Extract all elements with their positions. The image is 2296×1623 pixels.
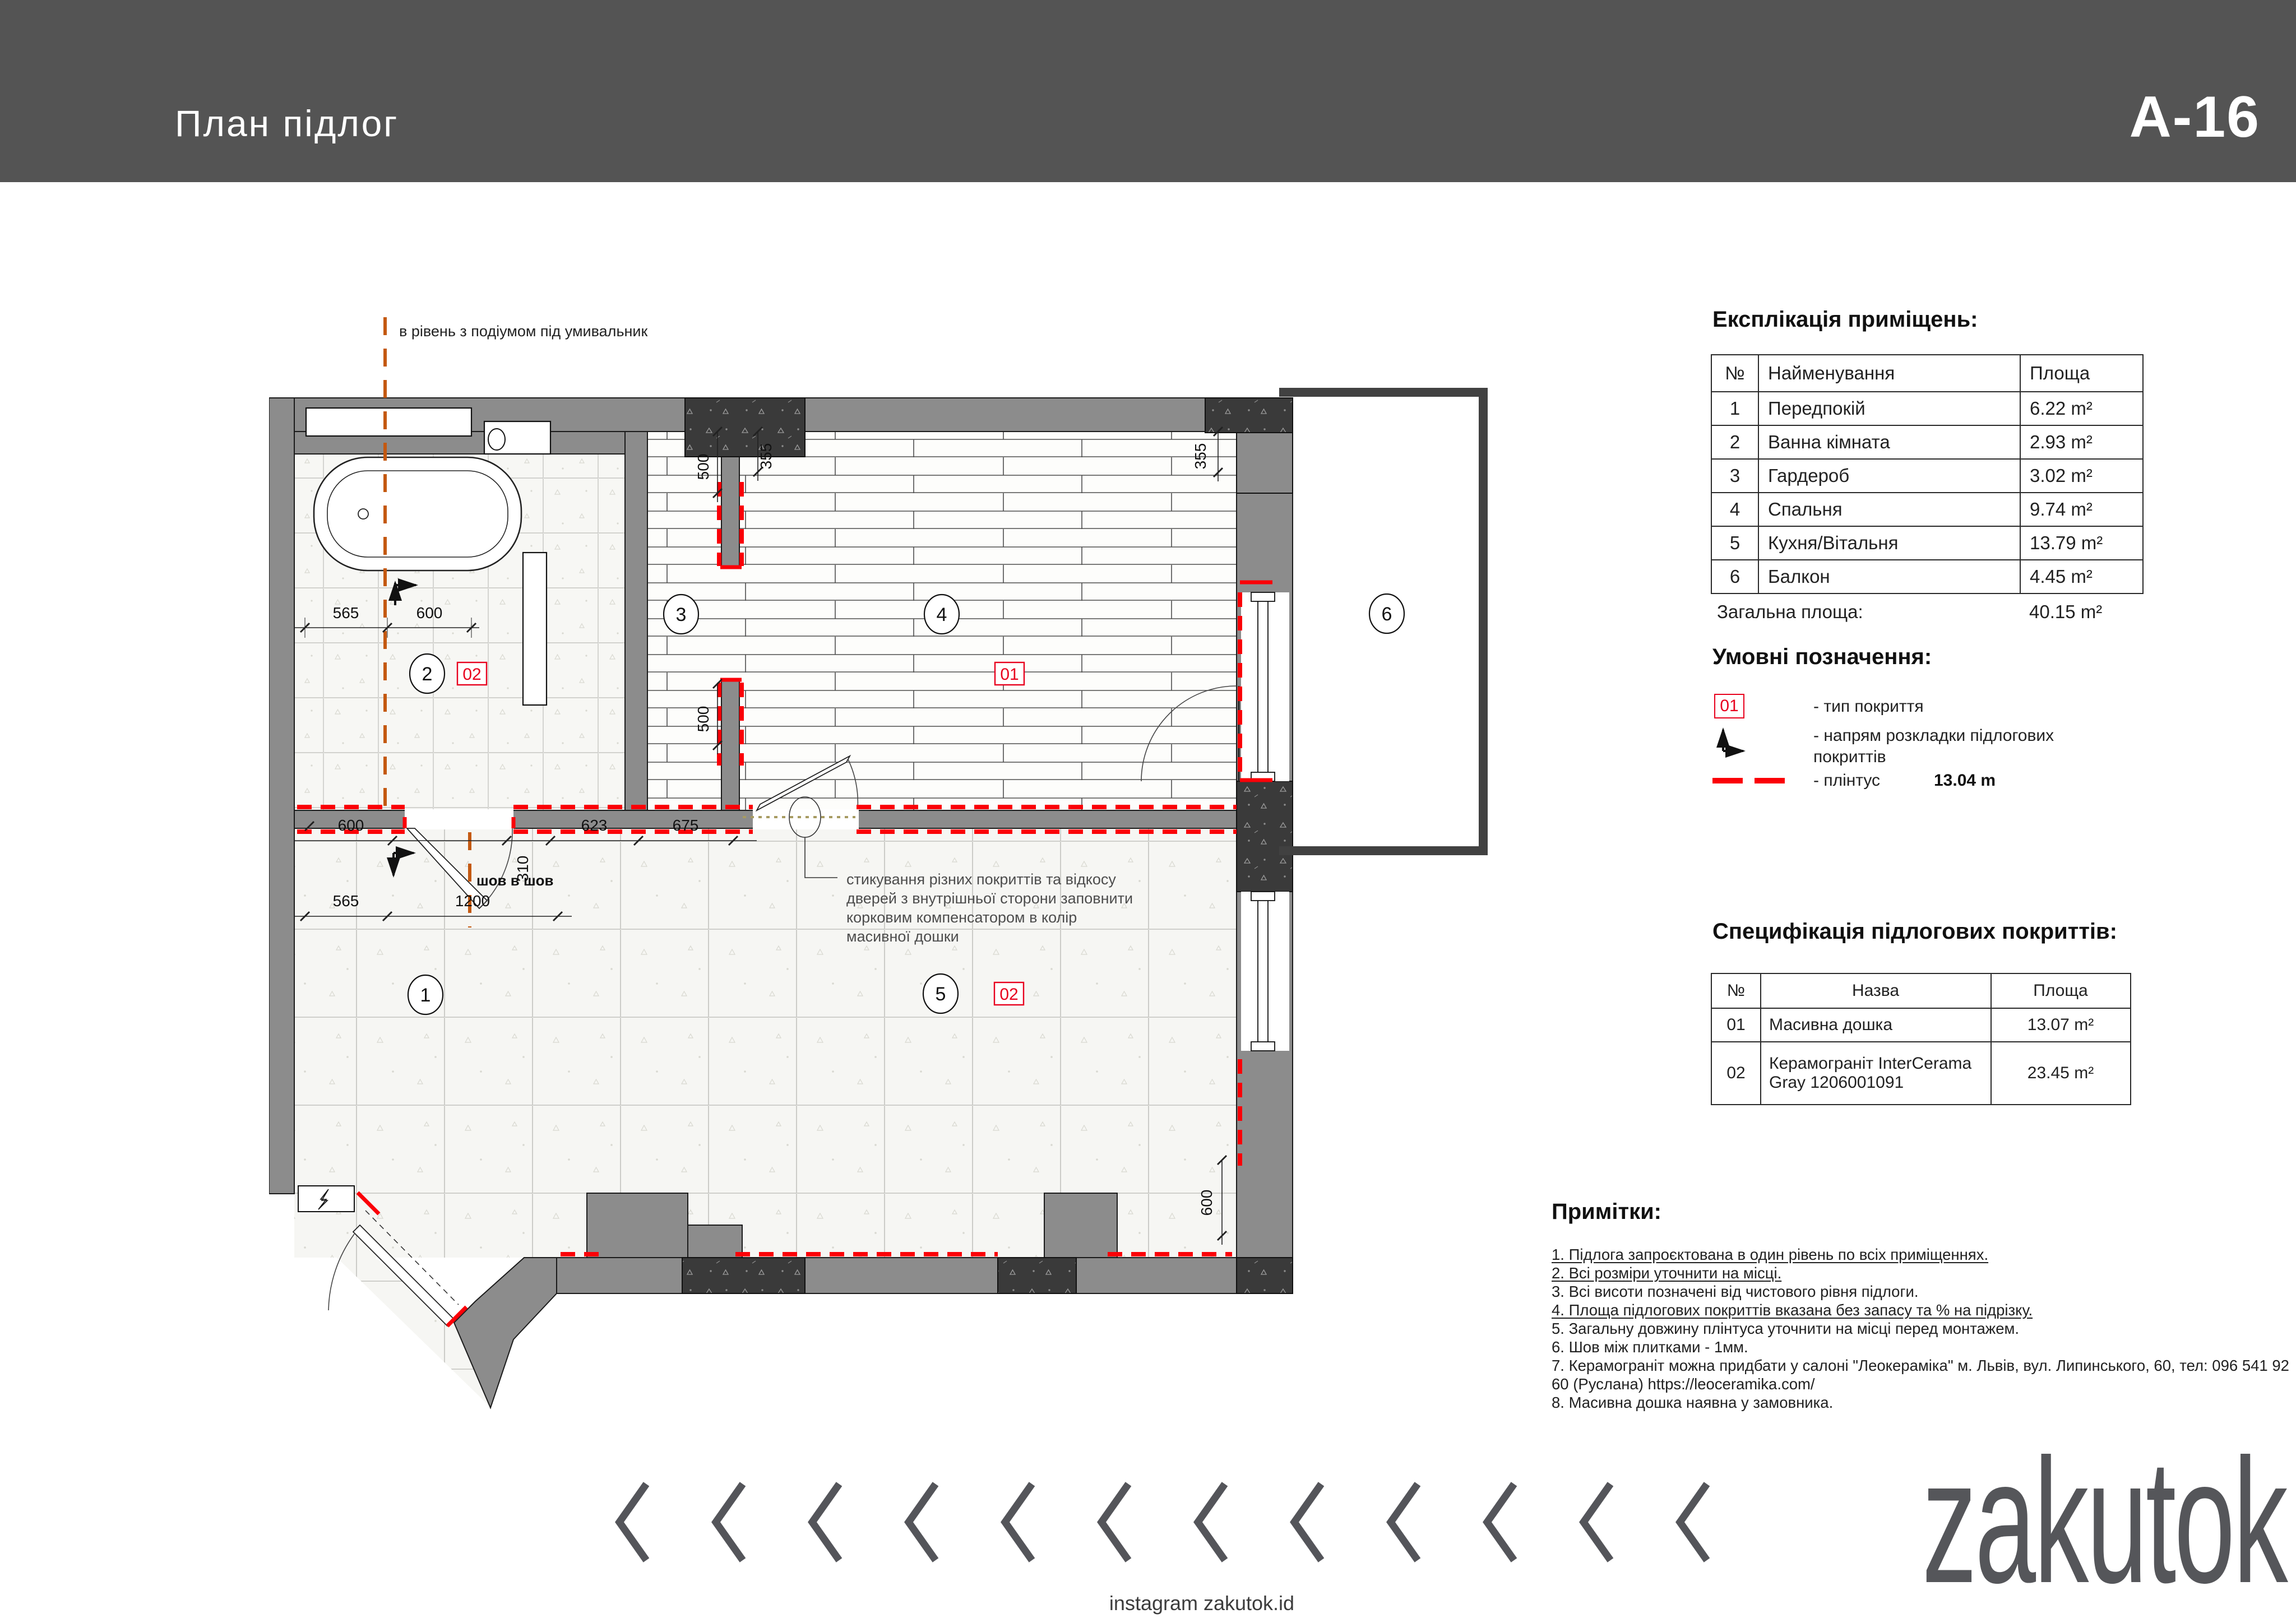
table-row: 4 Спальня 9.74 m² [1711, 493, 2143, 526]
note-item: 1. Підлога запроєктована в один рівень п… [1552, 1245, 2296, 1264]
page-title: План підлог [175, 102, 399, 145]
plinth-dash-icon [1755, 778, 1785, 783]
bathroom-right-wall [625, 432, 647, 828]
col-header: № [1711, 973, 1761, 1008]
note-item: 4. Площа підлогових покриттів вказана бе… [1552, 1301, 2296, 1319]
spec-table: № Назва Площа 01 Масивна дошка 13.07 m² … [1711, 973, 2131, 1105]
room-number: 6 [1382, 604, 1392, 625]
col-header: Площа [2020, 355, 2143, 392]
bathtub [314, 457, 521, 571]
table-row: 1 Передпокій 6.22 m² [1711, 392, 2143, 425]
legend-item-label: - тип покриття [1813, 697, 1924, 716]
sheet-number: A-16 [2130, 84, 2260, 151]
svg-text:600: 600 [338, 817, 364, 834]
brand-chevrons [614, 1480, 1769, 1565]
legend-item-label: - плінтус [1813, 771, 1880, 790]
shelf [306, 408, 471, 436]
svg-text:600: 600 [416, 604, 443, 622]
direction-icon [1715, 722, 1755, 761]
room-number: 5 [936, 984, 946, 1005]
svg-text:дверей з внутрішньої сторони з: дверей з внутрішньої сторони заповнити [846, 890, 1133, 907]
svg-text:565: 565 [333, 604, 359, 622]
covering-type-badge: 01 [1714, 694, 1744, 718]
cabinet [523, 553, 547, 705]
svg-text:675: 675 [673, 817, 699, 834]
svg-text:623: 623 [581, 817, 608, 834]
instagram-handle: instagram zakutok.id [1034, 1592, 1370, 1615]
left-wall [269, 398, 294, 1194]
niche-2 [1044, 1193, 1117, 1258]
total-label: Загальна площа: [1711, 593, 2020, 629]
table-row: 5 Кухня/Вітальня 13.79 m² [1711, 526, 2143, 560]
table-row: 2 Ванна кімната 2.93 m² [1711, 425, 2143, 459]
bedroom-door-opening [753, 809, 859, 829]
note-item: 6. Шов між плитками - 1мм. [1552, 1338, 2296, 1356]
marker-02: 02 [462, 665, 481, 684]
legend-item-label: покриттів [1813, 748, 1886, 767]
washbasin [488, 429, 505, 450]
room-number: 3 [676, 604, 687, 625]
total-value: 40.15 m² [2020, 593, 2143, 629]
floor-plan: в рівень з подіумом під умивальник шов в… [269, 314, 1525, 1440]
explication-title: Експлікація приміщень: [1712, 307, 1978, 332]
podium-note: в рівень з подіумом під умивальник [399, 323, 647, 340]
kitchen-window-opening [1241, 892, 1289, 1051]
title-band: План підлог A-16 [0, 0, 2296, 182]
svg-text:500: 500 [695, 706, 712, 732]
legend-title: Умовні позначення: [1712, 644, 1932, 670]
note-item: 5. Загальну довжину плінтуса уточнити на… [1552, 1319, 2296, 1338]
room-number: 4 [937, 604, 947, 625]
col-header: Назва [1761, 973, 1991, 1008]
sink-niche [688, 1225, 742, 1258]
note-item: 7. Керамограніт можна придбати у салоні … [1552, 1356, 2296, 1393]
table-row: 01 Масивна дошка 13.07 m² [1711, 1008, 2131, 1042]
table-row: 3 Гардероб 3.02 m² [1711, 459, 2143, 493]
total-row: Загальна площа: 40.15 m² [1711, 593, 2143, 629]
marker-02: 02 [999, 985, 1018, 1004]
room-number: 1 [420, 985, 431, 1006]
svg-text:корковим компенсатором в колір: корковим компенсатором в колір [846, 909, 1077, 926]
legend-item-label: - напрям розкладки підлогових [1813, 726, 2054, 745]
bathroom-door-opening [405, 809, 513, 829]
plinth-length-value: 13.04 m [1934, 771, 1996, 790]
explication-table: № Найменування Площа 1 Передпокій 6.22 m… [1711, 354, 2144, 629]
col-header: № [1711, 355, 1758, 392]
room-number: 2 [422, 664, 433, 685]
notes-title: Примітки: [1552, 1199, 1661, 1225]
svg-text:355: 355 [1192, 443, 1209, 470]
partition-upper [721, 455, 739, 567]
col-header: Площа [1991, 973, 2131, 1008]
niche-1 [587, 1193, 688, 1258]
svg-text:500: 500 [695, 454, 712, 480]
svg-text:масивної дошки: масивної дошки [846, 928, 959, 945]
note-item: 3. Всі висоти позначені від чистового рі… [1552, 1282, 2296, 1301]
svg-text:310: 310 [514, 856, 531, 882]
svg-text:стикування різних покриттів та: стикування різних покриттів та відкосу [846, 871, 1116, 888]
electrical-box [298, 1186, 354, 1212]
balcony-door-opening [1241, 592, 1289, 781]
svg-text:565: 565 [333, 892, 359, 910]
svg-text:600: 600 [1198, 1190, 1215, 1216]
sheet: План підлог A-16 [0, 0, 2296, 1623]
bottom-wall [557, 1258, 1293, 1293]
plinth-dash-icon [1712, 778, 1743, 783]
brand-logo: zakutok [1922, 1419, 2286, 1622]
col-header: Найменування [1758, 355, 2020, 392]
svg-text:1200: 1200 [455, 892, 490, 910]
marker-01: 01 [1000, 665, 1019, 684]
notes-list: 1. Підлога запроєктована в один рівень п… [1552, 1245, 2296, 1412]
note-item: 8. Масивна дошка наявна у замовника. [1552, 1393, 2296, 1412]
spec-title: Специфікація підлогових покриттів: [1712, 919, 2117, 944]
partition-lower [721, 680, 739, 810]
table-row: 02 Керамограніт InterCerama Gray 1206001… [1711, 1042, 2131, 1105]
note-item: 2. Всі розміри уточнити на місці. [1552, 1264, 2296, 1282]
table-row: 6 Балкон 4.45 m² [1711, 560, 2143, 593]
svg-text:355: 355 [757, 443, 775, 470]
